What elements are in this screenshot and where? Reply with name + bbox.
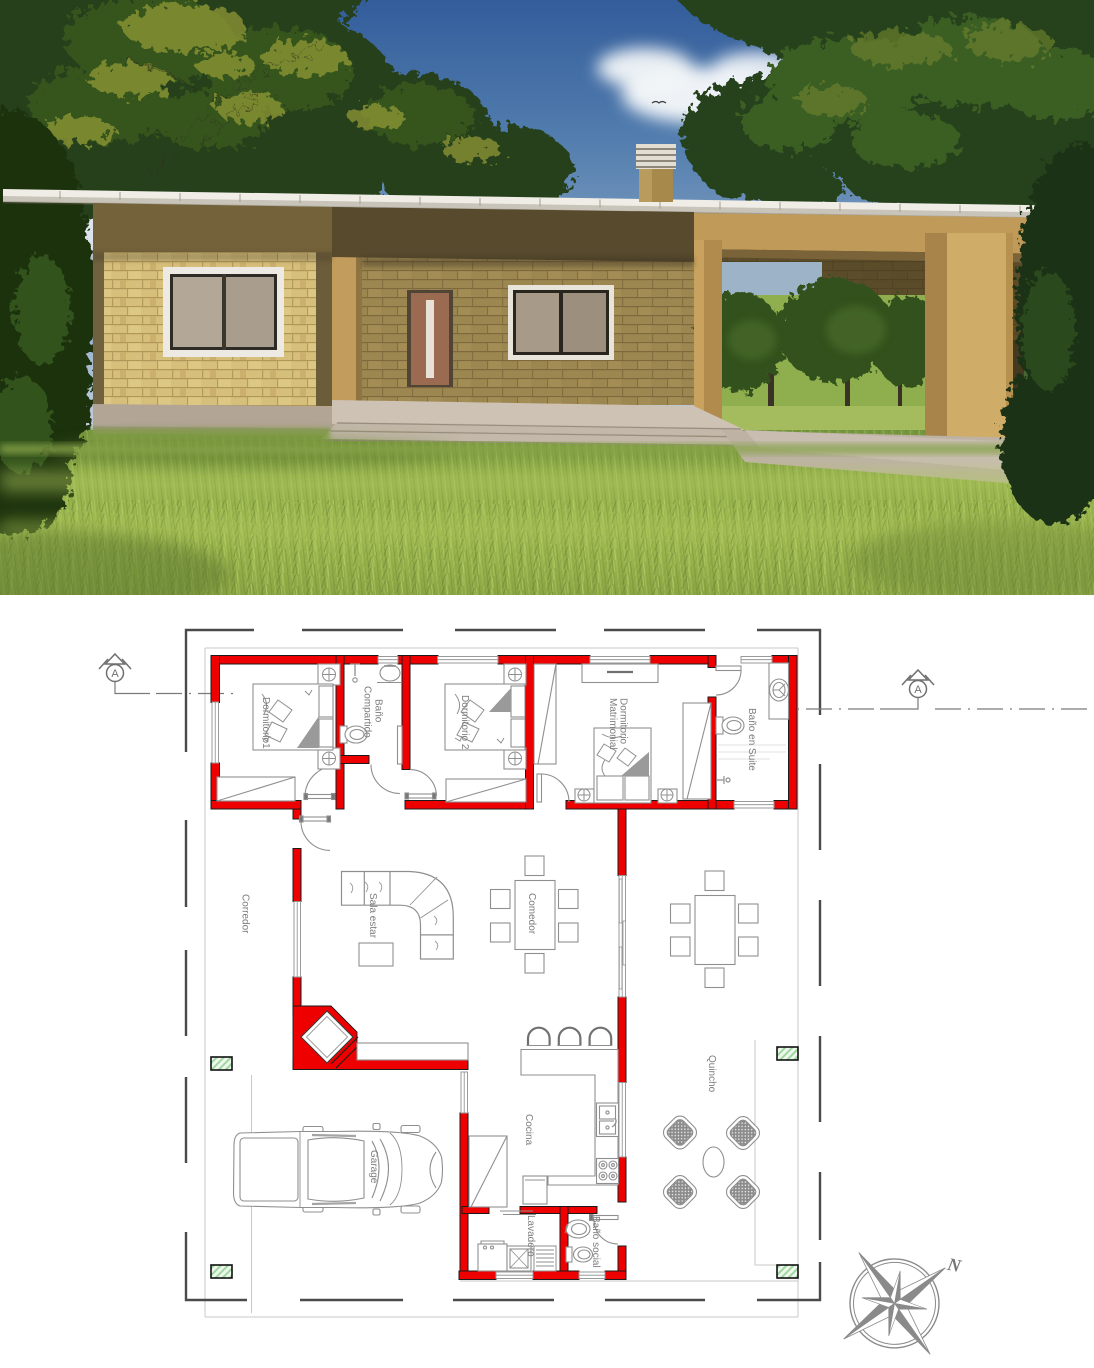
svg-text:Matrimonial: Matrimonial (607, 698, 618, 750)
svg-text:Comedor: Comedor (526, 893, 537, 935)
svg-text:Corredor: Corredor (240, 894, 251, 934)
svg-text:Garage: Garage (368, 1150, 379, 1184)
svg-text:Quincho: Quincho (706, 1055, 717, 1093)
svg-text:Dormitorio1: Dormitorio1 (260, 697, 271, 749)
svg-text:Baño en Suite: Baño en Suite (746, 708, 757, 771)
svg-text:Baño social: Baño social (590, 1216, 601, 1268)
svg-text:Sala estar: Sala estar (367, 893, 378, 939)
svg-text:Lavadero: Lavadero (525, 1215, 536, 1257)
svg-text:Cocina: Cocina (523, 1114, 534, 1146)
svg-text:Dormitorio 2: Dormitorio 2 (459, 695, 470, 750)
svg-text:A: A (914, 684, 922, 696)
svg-text:Baño: Baño (373, 699, 384, 723)
svg-text:A: A (111, 668, 119, 680)
svg-text:Dormitorio: Dormitorio (618, 698, 629, 745)
svg-text:Compartido: Compartido (362, 686, 373, 738)
